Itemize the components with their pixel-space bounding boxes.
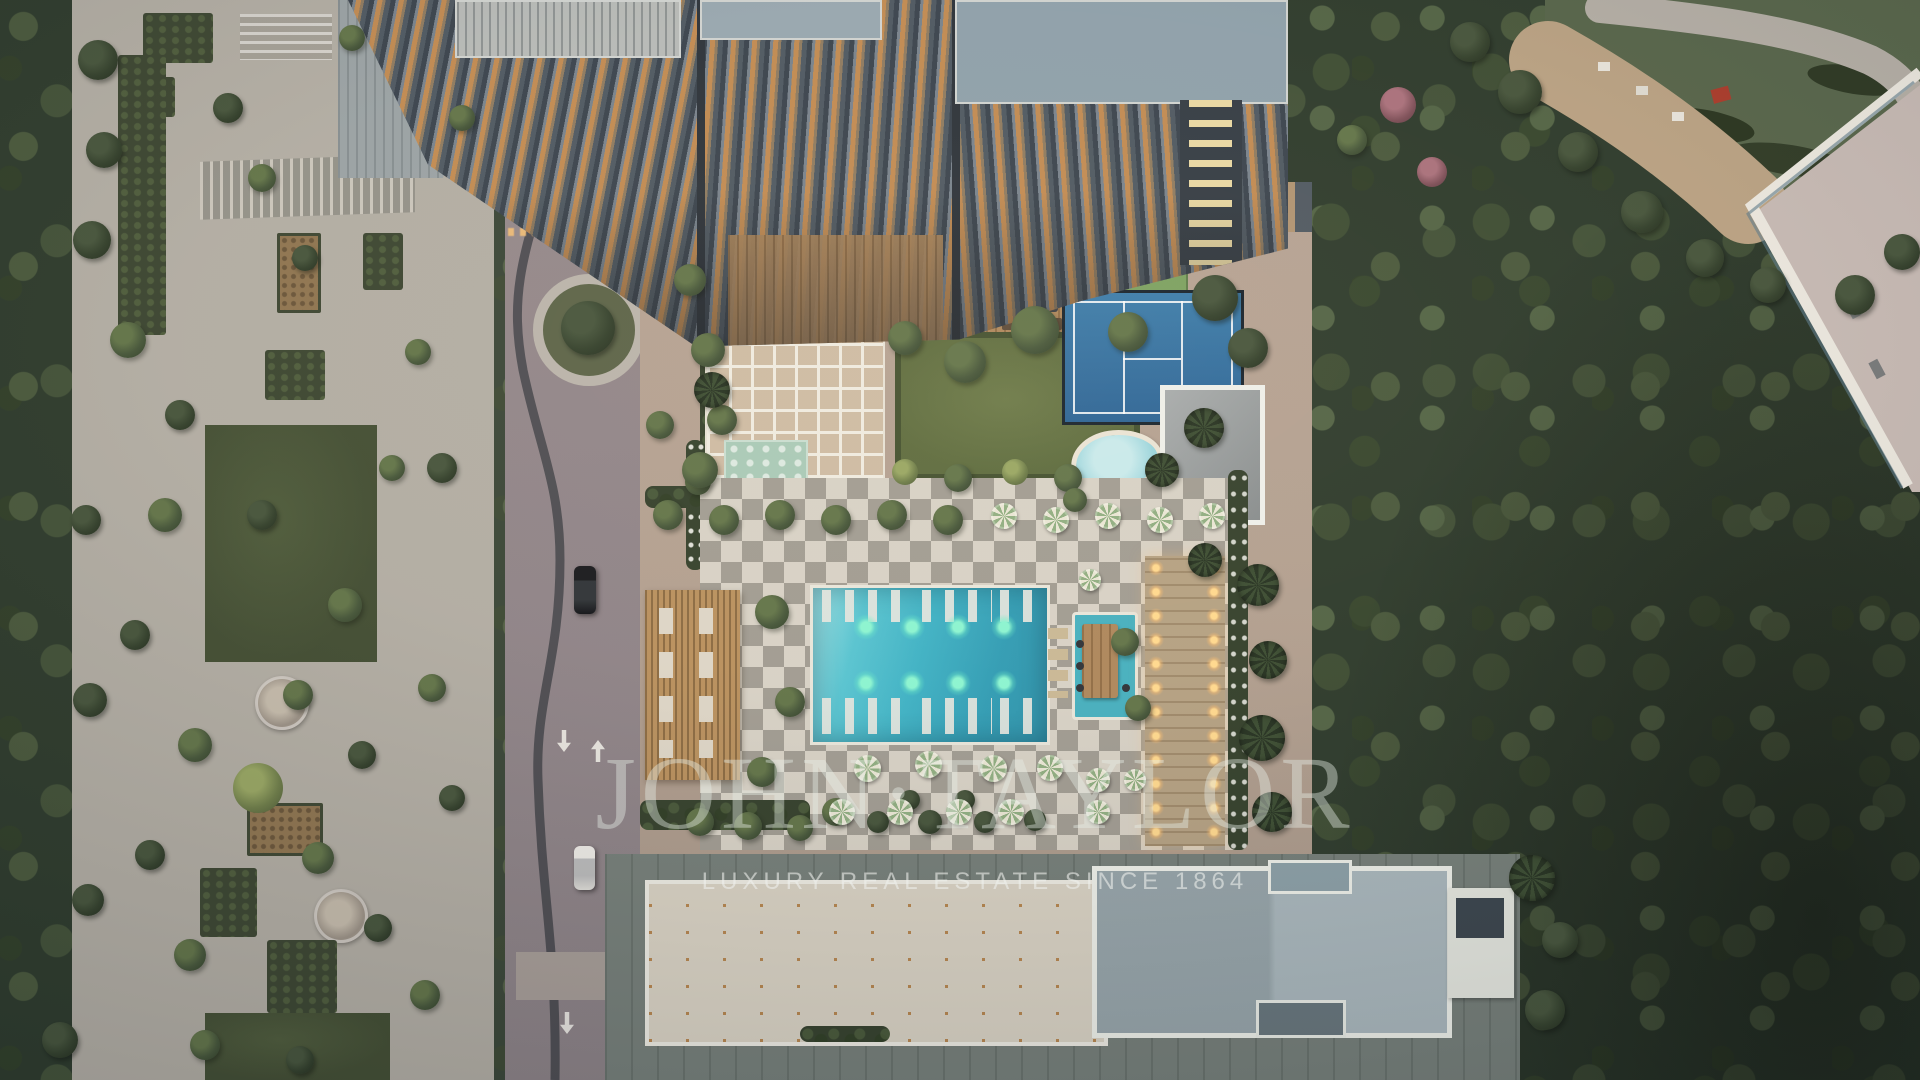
tree [1380, 87, 1416, 123]
palm-tree [1184, 408, 1224, 448]
tree [1002, 459, 1028, 485]
pool-umbrella [1086, 768, 1110, 792]
tree [1337, 125, 1367, 155]
tree [1450, 22, 1490, 62]
palm-tree [1237, 564, 1279, 606]
pool-umbrella [887, 799, 913, 825]
tree [86, 132, 122, 168]
tree [405, 339, 431, 365]
tree [1108, 312, 1148, 352]
tree [1192, 275, 1238, 321]
pool-umbrella [1124, 769, 1146, 791]
tree [233, 763, 283, 813]
palm-tree [694, 372, 730, 408]
tree [974, 811, 996, 833]
palm-tree [1188, 543, 1222, 577]
tree [135, 840, 165, 870]
tree [78, 40, 118, 80]
tree [1750, 267, 1786, 303]
tree [888, 321, 922, 355]
tree [682, 452, 718, 488]
tree [328, 588, 362, 622]
pool-umbrella [980, 755, 1007, 782]
tree [1111, 628, 1139, 656]
tree [918, 810, 942, 834]
tree [1417, 157, 1447, 187]
tree [892, 459, 918, 485]
pool-umbrella [1199, 503, 1225, 529]
tree [1063, 488, 1087, 512]
tree [867, 811, 889, 833]
tree [120, 620, 150, 650]
tree [190, 1030, 220, 1060]
pool-umbrella [1037, 755, 1063, 781]
tree [709, 505, 739, 535]
tree [674, 264, 706, 296]
tree [339, 25, 365, 51]
pool-umbrella [991, 503, 1017, 529]
tree [110, 322, 146, 358]
tree [439, 785, 465, 811]
tree [148, 498, 182, 532]
tree [787, 815, 813, 841]
tree [646, 411, 674, 439]
tree [1558, 132, 1598, 172]
tree [286, 1046, 314, 1074]
tree [292, 245, 318, 271]
tree [765, 500, 795, 530]
tree [1542, 922, 1578, 958]
pool-umbrella [998, 799, 1024, 825]
tree [734, 812, 762, 840]
tree [73, 683, 107, 717]
tree [821, 505, 851, 535]
palm-tree [1145, 453, 1179, 487]
tree [755, 595, 789, 629]
tree [1125, 695, 1151, 721]
tree [775, 687, 805, 717]
tree [449, 105, 475, 131]
tree [302, 842, 334, 874]
tree [73, 221, 111, 259]
tree [877, 500, 907, 530]
tree [944, 341, 986, 383]
tree [364, 914, 392, 942]
tree [71, 505, 101, 535]
tree [1011, 306, 1059, 354]
tree [1621, 191, 1663, 233]
pool-umbrella [915, 751, 942, 778]
tree [72, 884, 104, 916]
tree [379, 455, 405, 481]
tree [1525, 990, 1565, 1030]
pool-umbrella [829, 799, 855, 825]
tree [247, 500, 277, 530]
palm-tree [1239, 715, 1285, 761]
tree [165, 400, 195, 430]
pool-umbrella [946, 799, 972, 825]
tree [1835, 275, 1875, 315]
tree [213, 93, 243, 123]
tree [1498, 70, 1542, 114]
pool-umbrella [1086, 800, 1110, 824]
tree [707, 405, 737, 435]
tree [1228, 328, 1268, 368]
tree [42, 1022, 78, 1058]
aerial-render-scene: JOHN·TAYLOR LUXURY REAL ESTATE SINCE 186… [0, 0, 1920, 1080]
tree [561, 301, 615, 355]
tree [944, 464, 972, 492]
tree [747, 757, 777, 787]
tree [1024, 809, 1046, 831]
tree [418, 674, 446, 702]
tree [283, 680, 313, 710]
palm-tree [1509, 855, 1555, 901]
pool-umbrella [1043, 507, 1069, 533]
tree [174, 939, 206, 971]
tree [348, 741, 376, 769]
palm-tree [1252, 792, 1292, 832]
tree [248, 164, 276, 192]
tree [427, 453, 457, 483]
tree [1686, 239, 1724, 277]
pool-umbrella [854, 755, 881, 782]
tree [410, 980, 440, 1010]
tree [686, 808, 714, 836]
pool-umbrella [1079, 569, 1101, 591]
tree [653, 500, 683, 530]
tree [691, 333, 725, 367]
tree [1884, 234, 1920, 270]
palm-tree [1249, 641, 1287, 679]
pool-umbrella [1095, 503, 1121, 529]
vegetation-layer [0, 0, 1920, 1080]
tree [933, 505, 963, 535]
pool-umbrella [1147, 507, 1173, 533]
tree [178, 728, 212, 762]
